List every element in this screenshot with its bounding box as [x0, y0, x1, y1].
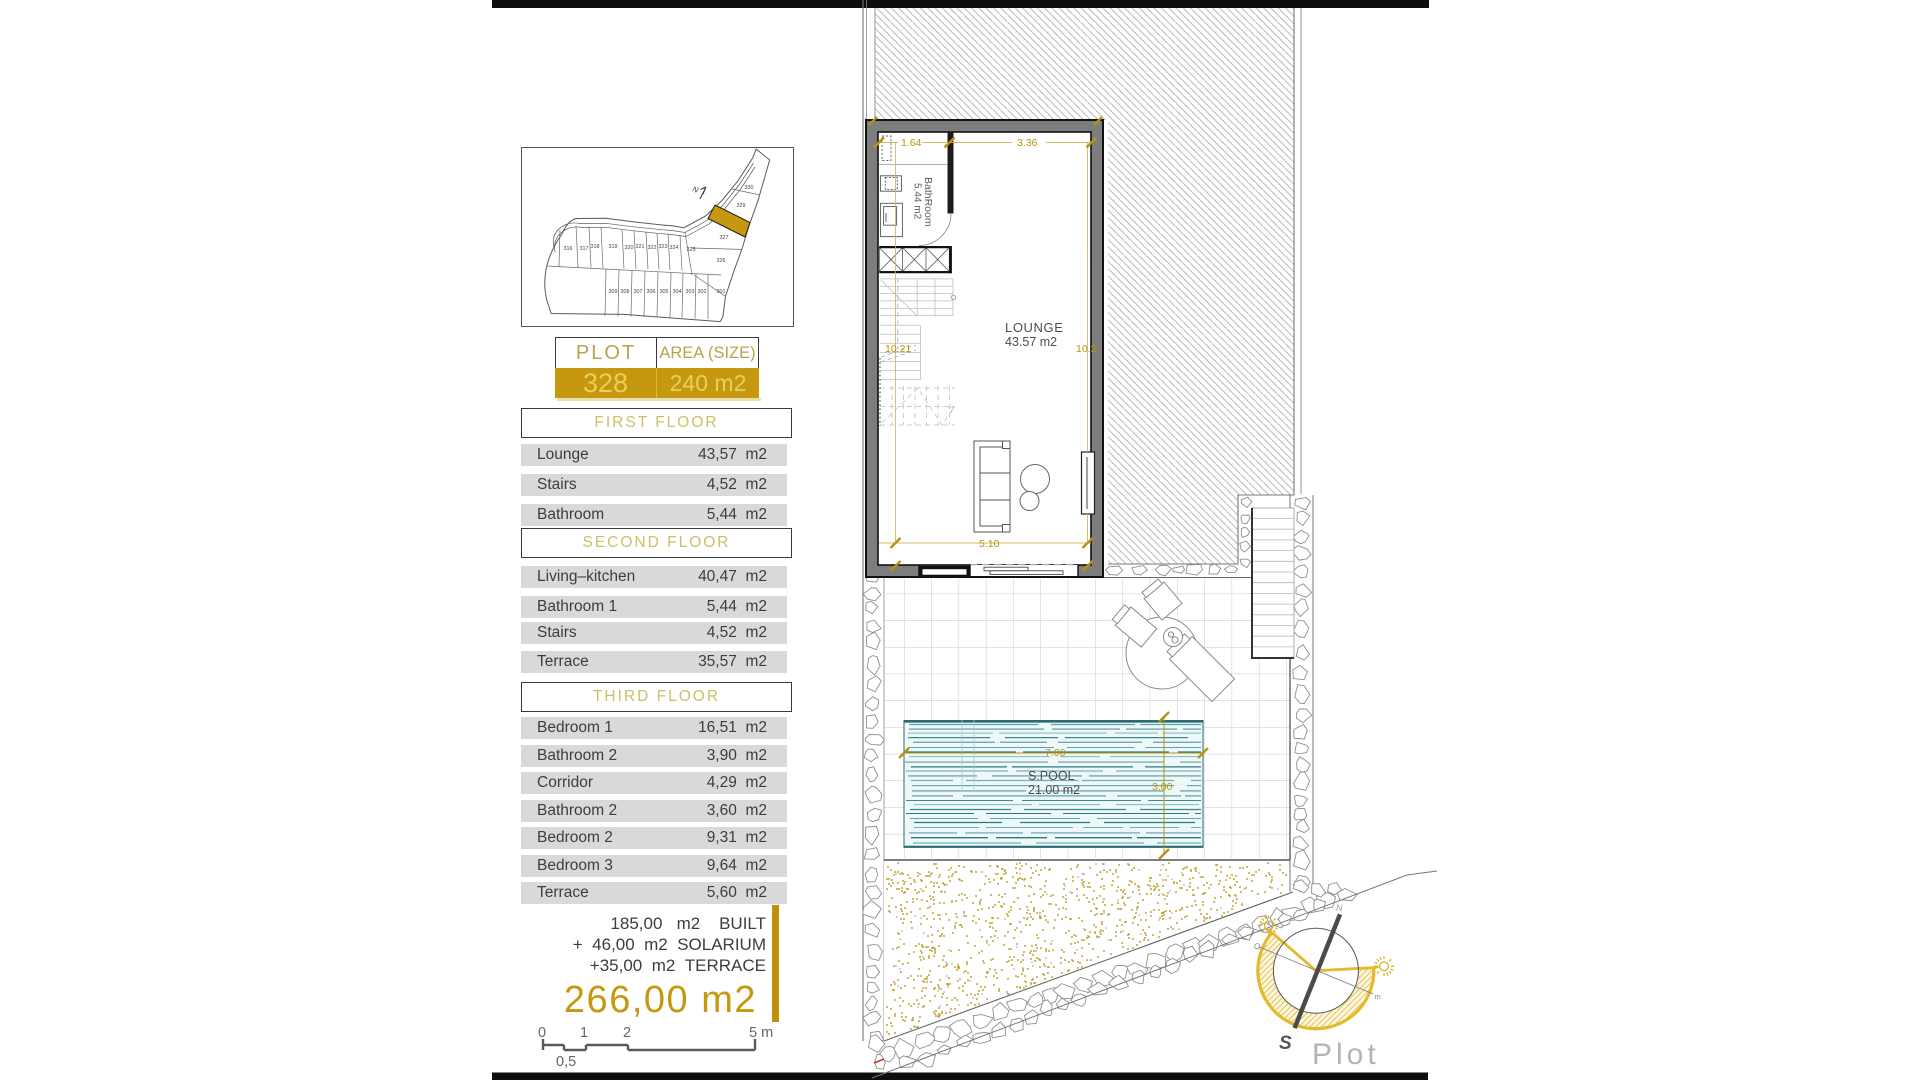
svg-text:S.POOL: S.POOL	[1028, 769, 1075, 783]
svg-text:10.21: 10.21	[885, 343, 911, 355]
svg-text:5.44 m2: 5.44 m2	[912, 183, 923, 220]
svg-text:N: N	[1336, 903, 1343, 913]
svg-text:3.36: 3.36	[1017, 137, 1038, 149]
svg-text:5.10: 5.10	[979, 538, 1000, 550]
svg-text:S: S	[1279, 1033, 1292, 1054]
svg-text:Plot: Plot	[1312, 1038, 1380, 1071]
svg-text:m: m	[1375, 992, 1381, 1001]
svg-text:7.00: 7.00	[1045, 747, 1066, 759]
svg-text:10.2: 10.2	[1076, 343, 1097, 355]
svg-text:1.64: 1.64	[901, 137, 922, 149]
svg-text:21.00 m2: 21.00 m2	[1028, 783, 1080, 797]
svg-text:BathRoom: BathRoom	[922, 177, 934, 227]
svg-text:3.00: 3.00	[1152, 781, 1173, 793]
svg-text:43.57 m2: 43.57 m2	[1005, 335, 1057, 349]
svg-text:LOUNGE: LOUNGE	[1005, 320, 1064, 335]
